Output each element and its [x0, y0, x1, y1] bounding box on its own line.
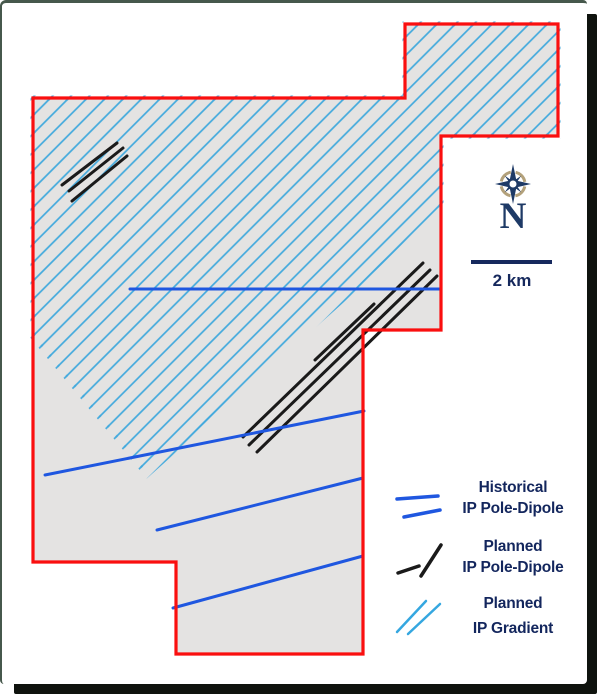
planned-lines-icon: [398, 566, 419, 573]
legend-planned-pd-subtitle: IP Pole-Dipole: [433, 557, 593, 579]
compass-north-label: N: [483, 199, 543, 235]
compass-center-dot: [508, 179, 517, 188]
legend-gradient-title: Planned: [433, 593, 593, 615]
legend-historical-title: Historical: [433, 477, 593, 499]
gradient-lines-icon: [397, 601, 426, 632]
legend-historical-subtitle: IP Pole-Dipole: [433, 498, 593, 520]
historical-lines-icon: [397, 496, 438, 499]
legend-planned-pd-title: Planned: [433, 536, 593, 558]
scale-bar-label: 2 km: [455, 270, 569, 292]
legend-gradient-subtitle: IP Gradient: [433, 618, 593, 640]
claim-map-figure: N 2 km Historical IP Pole-Dipole Planned…: [0, 0, 600, 695]
scale-bar: [471, 260, 552, 264]
claim-map: [0, 0, 600, 695]
